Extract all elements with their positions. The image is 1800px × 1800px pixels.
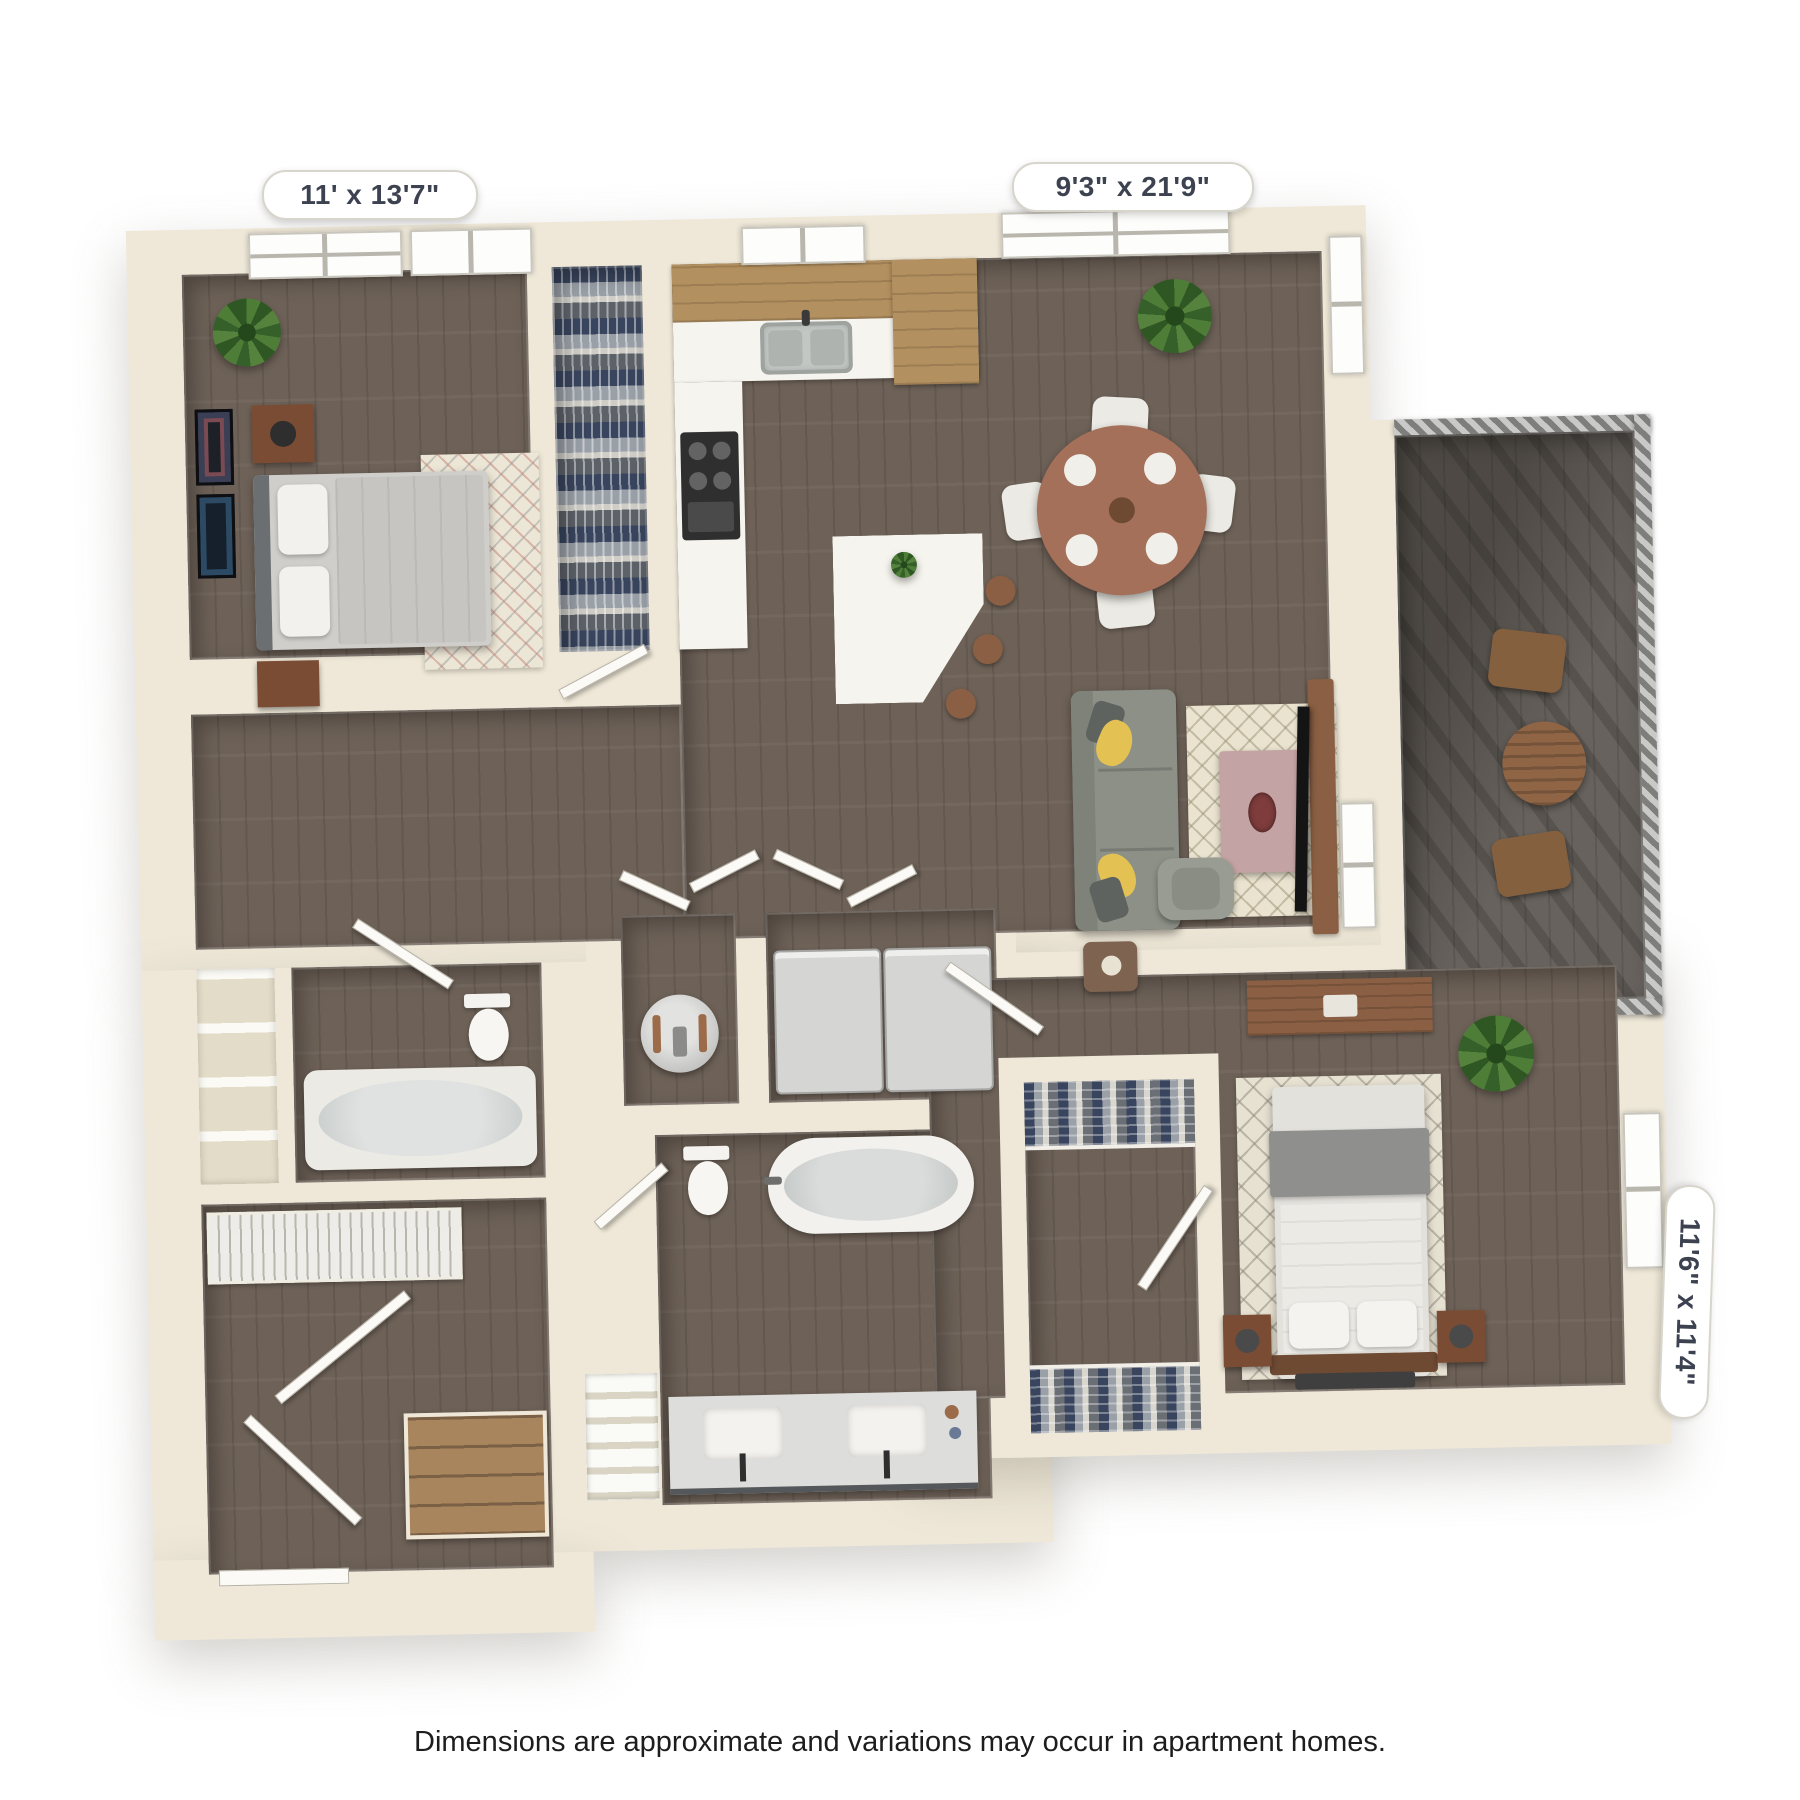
utility-closets <box>0 0 1781 19</box>
pantry-cabinet <box>892 258 980 385</box>
window-icon <box>410 228 533 277</box>
hallway-floor <box>191 705 686 950</box>
window-icon <box>1623 1112 1664 1269</box>
kitchen <box>0 0 1781 19</box>
patio-chair <box>1487 628 1567 694</box>
dryer-icon <box>883 946 994 1092</box>
hanging-clothes <box>1030 1362 1201 1434</box>
balcony <box>0 0 1781 19</box>
faucet-icon <box>764 1177 782 1185</box>
stairs-icon <box>585 1373 660 1500</box>
tv-console <box>1307 679 1338 934</box>
dimension-text: 11' x 13'7" <box>300 179 440 211</box>
toiletries <box>945 1405 959 1419</box>
bathroom2 <box>0 0 1781 19</box>
duvet <box>335 475 486 645</box>
washer-icon <box>773 948 884 1094</box>
pillow <box>279 566 330 637</box>
sink-icon <box>703 1407 784 1461</box>
sink-icon <box>847 1404 928 1458</box>
pillow <box>1289 1302 1350 1349</box>
bedroom1 <box>0 0 1781 19</box>
balcony-door <box>1340 802 1377 929</box>
bed <box>253 471 492 651</box>
place-setting <box>1144 452 1177 485</box>
pillow <box>1357 1300 1418 1347</box>
candle-icon <box>1101 955 1121 975</box>
faucet-icon <box>802 310 810 326</box>
hanging-clothes <box>1024 1079 1195 1151</box>
blanket <box>1269 1128 1430 1197</box>
armchair <box>1157 857 1234 921</box>
dimension-label-living: 9'3" x 21'9" <box>1012 162 1254 212</box>
lamp-icon <box>1449 1324 1473 1348</box>
stove-icon <box>680 431 740 540</box>
place-setting <box>1065 534 1098 567</box>
living-room <box>0 0 1781 19</box>
bed <box>1272 1084 1430 1379</box>
bathtub-icon <box>303 1066 537 1171</box>
window-icon <box>1001 208 1231 259</box>
floorplan-page: 11' x 13'7" 9'3" x 21'9" 11'6" x 11'4" D… <box>0 0 1800 1800</box>
floor-plan <box>0 0 1800 1800</box>
wire-shelf-closet <box>206 1207 462 1284</box>
pillow <box>277 484 328 555</box>
faucet-icon <box>740 1453 747 1481</box>
door-threshold <box>219 1568 349 1587</box>
dimension-label-bedroom2: 11'6" x 11'4" <box>1658 1184 1716 1420</box>
faucet-icon <box>884 1450 891 1478</box>
sink-icon <box>760 321 853 375</box>
toilet-icon <box>464 993 510 1008</box>
bedroom1-closet <box>552 265 650 652</box>
bedroom2 <box>0 0 1781 19</box>
vanity-double-sink <box>668 1391 978 1495</box>
bathtub-icon <box>767 1135 975 1235</box>
coffee-table <box>1219 749 1308 873</box>
bench-runner <box>1295 1371 1415 1390</box>
disclaimer-text: Dimensions are approximate and variation… <box>0 1726 1800 1759</box>
bathroom1 <box>0 0 1781 19</box>
stairs-wood <box>404 1411 550 1540</box>
dimension-label-bedroom1: 11' x 13'7" <box>262 170 478 220</box>
toilet-icon <box>683 1146 729 1161</box>
nightstand <box>1223 1314 1272 1367</box>
walkin-closet <box>0 0 1781 19</box>
window-icon <box>741 225 866 266</box>
lamp-icon <box>1235 1329 1259 1353</box>
desk-item <box>1323 994 1357 1017</box>
picture-frame-icon <box>196 494 236 579</box>
dimension-text: 9'3" x 21'9" <box>1056 171 1211 203</box>
nightstand <box>1437 1310 1486 1363</box>
nightstand <box>257 660 320 707</box>
patio-chair <box>1490 829 1572 898</box>
picture-frame-icon <box>195 409 235 486</box>
place-setting <box>1064 454 1097 487</box>
place-setting <box>1145 532 1178 565</box>
side-table <box>1083 941 1138 992</box>
balcony-floor <box>1394 431 1646 1004</box>
dimension-text: 11'6" x 11'4" <box>1668 1218 1706 1387</box>
desk <box>1247 977 1433 1036</box>
decor-item <box>1248 792 1277 833</box>
centerpiece <box>1109 497 1136 524</box>
dining-area <box>0 0 1781 19</box>
linen-shelves <box>196 968 278 1185</box>
entry <box>0 0 1781 19</box>
toiletries <box>949 1427 961 1439</box>
window-icon <box>1328 235 1365 375</box>
window-icon <box>248 230 403 279</box>
